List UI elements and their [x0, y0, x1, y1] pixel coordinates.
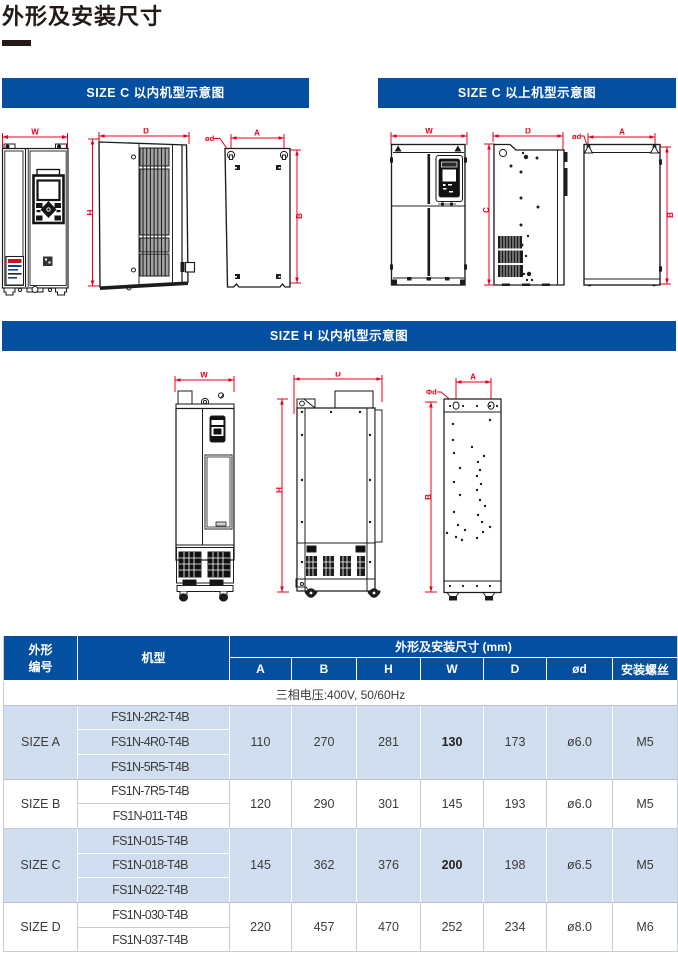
svg-text:A: A	[470, 373, 476, 382]
svg-text:H: H	[275, 487, 284, 493]
svg-text:B: B	[424, 494, 433, 500]
svg-text:B: B	[295, 213, 303, 219]
svg-text:B: B	[666, 212, 675, 218]
svg-text:H: H	[86, 209, 95, 215]
svg-text:A: A	[254, 129, 260, 138]
svg-text:W: W	[200, 372, 208, 380]
svg-text:W: W	[425, 128, 433, 136]
svg-text:Φd: Φd	[426, 388, 437, 397]
svg-text:W: W	[31, 128, 39, 137]
svg-text:D: D	[335, 372, 341, 379]
svg-text:A: A	[619, 128, 625, 137]
svg-text:D: D	[525, 128, 531, 136]
svg-text:C: C	[482, 207, 491, 213]
svg-text:ød: ød	[205, 134, 215, 143]
svg-text:D: D	[143, 128, 149, 136]
svg-text:ød: ød	[572, 132, 582, 141]
